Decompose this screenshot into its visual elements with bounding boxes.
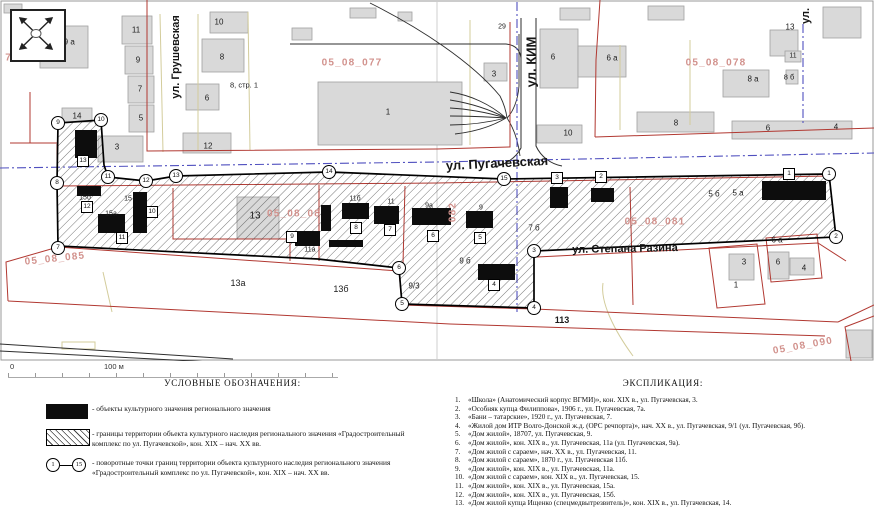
explication-item: 9.«Дом жилой», кон. XIX в., ул. Пугачевс… — [455, 465, 871, 474]
explication-item-number: 4. — [455, 422, 468, 431]
legend-item-text: - поворотные точки границ территории объ… — [92, 458, 435, 477]
building-number-label: 15 — [124, 196, 132, 203]
building-number-label: 6 а — [606, 54, 617, 63]
building-number-label: 3 — [115, 143, 119, 152]
building-number-label: 15а — [105, 211, 117, 218]
street-label: ул. КИМ — [524, 37, 539, 88]
building-number-label: 11 — [132, 26, 140, 35]
explication-item-text: «Дом жилой с сараем», нач. XX в., ул. Пу… — [468, 448, 871, 457]
turning-point-marker: 14 — [322, 165, 336, 179]
building-number-label: 13б — [333, 284, 348, 294]
explication-item-number: 7. — [455, 448, 468, 457]
explication-item: 10.«Дом жилой с сараем», кон. XIX в., ул… — [455, 473, 871, 482]
cadastral-quarter-label: 05_08_08 — [267, 209, 321, 220]
explication-item-number: 1. — [455, 396, 468, 405]
turning-point-marker: 6 — [392, 261, 406, 275]
building-number-label: 1 — [734, 281, 738, 290]
territory-boundary-swatch — [46, 429, 90, 446]
building-number-label: 113 — [555, 315, 570, 325]
explication-item-text: «Дом жилой», 18707, ул. Пугачевская, 9. — [468, 430, 871, 439]
turning-point-marker: 3 — [527, 244, 541, 258]
heritage-object-marker: 3 — [551, 172, 563, 184]
map-annotations: ул. Грушевскаяул. КИМул. Пугачевскаяул. … — [0, 0, 874, 361]
turning-point-marker: 15 — [497, 172, 511, 186]
building-number-label: 10 — [215, 18, 224, 27]
building-number-label: 13а — [230, 278, 245, 288]
building-number-label: 9/3 — [408, 282, 419, 291]
explication-item: 3.«Бани – татарские», 1920 г., ул. Пугач… — [455, 413, 871, 422]
explication-item-text: «Жилой дом ИТР Волго-Донской ж.д. (ОРС р… — [468, 422, 871, 431]
building-number-label: 8 а — [747, 75, 758, 84]
explication-item-text: «Дом жилой», кон. XIX в., ул. Пугачевска… — [468, 465, 871, 474]
building-number-label: 6 — [205, 94, 209, 103]
heritage-object-marker: 13 — [77, 155, 89, 167]
explication-item: 2.«Особняк купца Филиппова», 1906 г., ул… — [455, 405, 871, 414]
turning-point-marker: 1 — [822, 167, 836, 181]
scale-end-label: 100 м — [104, 362, 124, 371]
building-number-label: 8 — [674, 119, 678, 128]
explication-item: 12.«Дом жилой», кон. XIX в., ул. Пугачев… — [455, 491, 871, 500]
building-number-label: 6 а — [771, 236, 782, 245]
explication-item-text: «Дом жилой купца Ищенко (спецмедвытрезви… — [468, 499, 871, 508]
turning-point-marker: 9 — [51, 116, 65, 130]
heritage-territory-plan: ул. Грушевскаяул. КИМул. Пугачевскаяул. … — [0, 0, 874, 512]
explication-item-text: «Бани – татарские», 1920 г., ул. Пугачев… — [468, 413, 871, 422]
explication-item-text: «Дом жилой», кон. XIX в., ул. Пугачевска… — [468, 482, 871, 491]
cadastral-quarter-label: 05_08_081 — [625, 217, 686, 228]
turning-point-marker: 7 — [51, 241, 65, 255]
explication-item-text: «Дом жилой», кон. XIX в., ул. Пугачевска… — [468, 491, 871, 500]
turning-point-marker: 10 — [94, 113, 108, 127]
legend: УСЛОВНЫЕ ОБОЗНАЧЕНИЯ: - объекты культурн… — [30, 378, 435, 478]
heritage-object-marker: 8 — [350, 222, 362, 234]
cadastral-quarter-label: 05_08_077 — [322, 58, 383, 69]
map: ул. Грушевскаяул. КИМул. Пугачевскаяул. … — [0, 0, 874, 361]
building-number-label: 5 — [139, 114, 143, 123]
turning-point-marker: 11 — [101, 170, 115, 184]
building-number-label: 8 — [220, 53, 224, 62]
turning-points-swatch: 1 15 — [46, 458, 92, 472]
legend-item-text: - объекты культурного значения региональ… — [92, 404, 435, 414]
building-number-label: 6 — [766, 124, 770, 133]
heritage-object-marker: 4 — [488, 279, 500, 291]
explication-item-text: «Особняк купца Филиппова», 1906 г., ул. … — [468, 405, 871, 414]
building-number-label: 3 — [742, 258, 746, 267]
explication-item-text: «Школа» (Анатомический корпус ВГМИ)», ко… — [468, 396, 871, 405]
heritage-object-marker: 9 — [286, 231, 298, 243]
explication-item-number: 5. — [455, 430, 468, 439]
building-number-label: 9а — [425, 203, 433, 210]
explication-item-number: 9. — [455, 465, 468, 474]
range-line — [60, 465, 72, 466]
legend-item-text: - границы территории объекта культурного… — [92, 429, 435, 448]
explication-item-number: 8. — [455, 456, 468, 465]
explication-item: 4.«Жилой дом ИТР Волго-Донской ж.д. (ОРС… — [455, 422, 871, 431]
explication-item-text: «Дом жилой», кон. XIX в., ул. Пугачевска… — [468, 439, 871, 448]
heritage-object-marker: 10 — [146, 206, 158, 218]
building-number-label: 9 — [136, 56, 140, 65]
turning-point-marker: 2 — [829, 230, 843, 244]
street-label: ул. Пугачевская — [445, 153, 548, 173]
heritage-object-marker: 7 — [384, 224, 396, 236]
explication-item-number: 2. — [455, 405, 468, 414]
building-number-label: 6 — [776, 258, 780, 267]
building-number-label: 8 б — [784, 73, 795, 82]
explication-item-number: 3. — [455, 413, 468, 422]
cadastral-quarter-label: 082 — [448, 202, 459, 222]
explication-item-number: 6. — [455, 439, 468, 448]
building-number-label: 1 — [386, 108, 390, 117]
building-number-label: 7 б — [528, 224, 539, 233]
building-number-label: 11 — [789, 53, 796, 60]
explication-item: 7.«Дом жилой с сараем», нач. XX в., ул. … — [455, 448, 871, 457]
explication-item: 11.«Дом жилой», кон. XIX в., ул. Пугачев… — [455, 482, 871, 491]
heritage-object-marker: 12 — [81, 201, 93, 213]
turning-point-marker: 13 — [169, 169, 183, 183]
legend-item: - объекты культурного значения региональ… — [30, 404, 435, 419]
legend-item: 1 15 - поворотные точки границ территори… — [30, 458, 435, 477]
heritage-object-marker: 5 — [474, 232, 486, 244]
explication-item: 8.«Дом жилой с сараем», 1870 г., ул. Пуг… — [455, 456, 871, 465]
explication-item: 13.«Дом жилой купца Ищенко (спецмедвытре… — [455, 499, 871, 508]
turning-point-marker: 5 — [395, 297, 409, 311]
compass-rose-icon — [10, 9, 66, 62]
building-number-label: 14 — [73, 112, 82, 121]
building-number-label: 5 а — [732, 189, 743, 198]
street-label: ул. — [800, 8, 812, 24]
building-number-label: 10 — [564, 129, 573, 138]
explication: ЭКСПЛИКАЦИЯ: 1.«Школа» (Анатомический ко… — [455, 378, 871, 508]
explication-item-text: «Дом жилой с сараем», 1870 г., ул. Пугач… — [468, 456, 871, 465]
building-number-label: 11б — [349, 196, 360, 203]
explication-item-text: «Дом жилой с сараем», кон. XIX в., ул. П… — [468, 473, 871, 482]
explication-items: 1.«Школа» (Анатомический корпус ВГМИ)», … — [455, 396, 871, 508]
turning-point-end: 15 — [72, 458, 86, 472]
heritage-object-marker: 11 — [116, 232, 128, 244]
turning-point-marker: 12 — [139, 174, 153, 188]
explication-item: 5.«Дом жилой», 18707, ул. Пугачевская, 9… — [455, 430, 871, 439]
scale-start-label: 0 — [10, 362, 14, 371]
street-label: ул. Грушевская — [170, 15, 182, 99]
explication-item-number: 13. — [455, 499, 468, 508]
heritage-object-marker: 6 — [427, 230, 439, 242]
building-number-label: 8, стр. 1 — [230, 81, 258, 90]
street-label: ул. Степана Разина — [572, 242, 678, 256]
building-number-label: 29 — [498, 24, 506, 31]
turning-point-marker: 4 — [527, 301, 541, 315]
legend-title: УСЛОВНЫЕ ОБОЗНАЧЕНИЯ: — [30, 378, 435, 388]
building-number-label: 4 — [834, 123, 838, 132]
explication-item-number: 10. — [455, 473, 468, 482]
explication-item-number: 12. — [455, 491, 468, 500]
building-number-label: 5 б — [708, 190, 719, 199]
scale-bar: 0 100 м — [8, 361, 348, 379]
legend-item: - границы территории объекта культурного… — [30, 429, 435, 448]
building-number-label: 4 — [802, 264, 806, 273]
building-number-label: 9 — [479, 205, 483, 212]
heritage-object-swatch — [46, 404, 88, 419]
building-number-label: 7 — [138, 85, 142, 94]
explication-title: ЭКСПЛИКАЦИЯ: — [455, 378, 871, 388]
heritage-object-marker: 2 — [595, 171, 607, 183]
explication-item-number: 11. — [455, 482, 468, 491]
explication-item: 1.«Школа» (Анатомический корпус ВГМИ)», … — [455, 396, 871, 405]
building-number-label: 13 — [786, 23, 795, 32]
heritage-object-marker: 1 — [783, 168, 795, 180]
turning-point-start: 1 — [46, 458, 60, 472]
turning-point-marker: 8 — [50, 176, 64, 190]
building-number-label: 13 — [249, 211, 260, 222]
cadastral-quarter-label: 05_08_090 — [772, 335, 834, 356]
building-number-label: 12 — [204, 142, 213, 151]
building-number-label: 6 — [551, 53, 555, 62]
cadastral-quarter-label: 05_08_078 — [686, 58, 747, 69]
building-number-label: 3 — [492, 70, 496, 79]
building-number-label: 11 — [387, 199, 394, 206]
building-number-label: 9 б — [459, 257, 470, 266]
building-number-label: 11а — [304, 247, 315, 254]
explication-item: 6.«Дом жилой», кон. XIX в., ул. Пугачевс… — [455, 439, 871, 448]
